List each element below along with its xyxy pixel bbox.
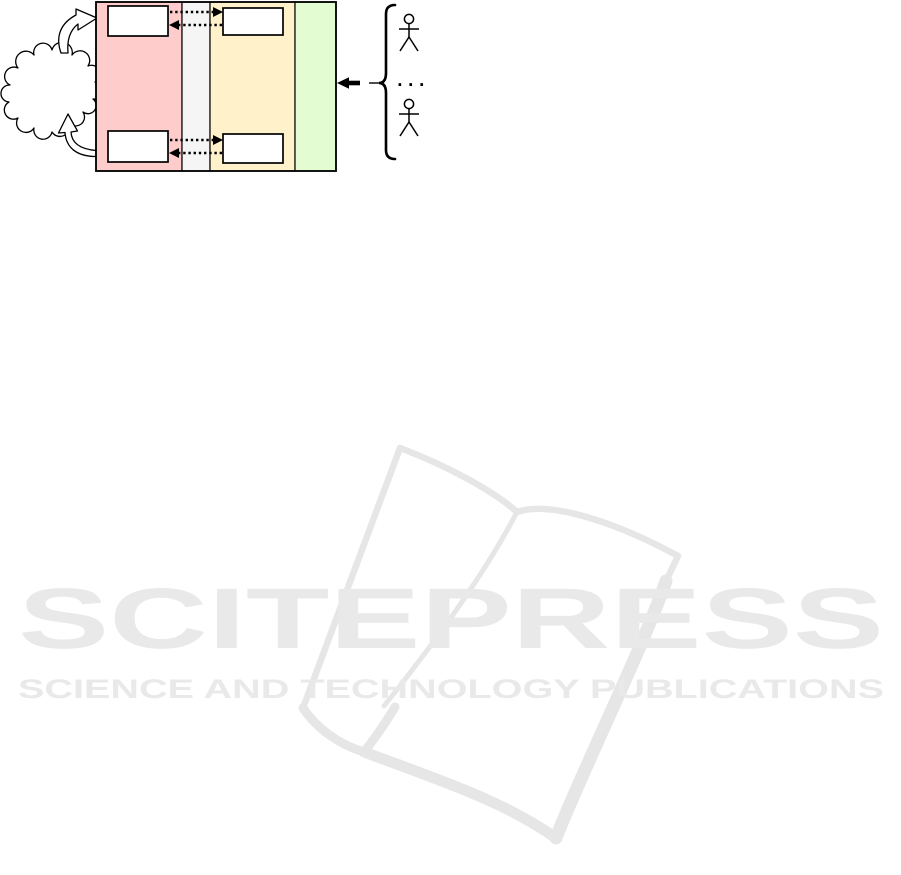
region-green [295,2,336,171]
users-brace [379,5,395,159]
user-icon-bottom [399,99,419,136]
region-gray [182,2,210,171]
users-arrow [337,77,360,89]
watermark-tagline: SCIENCE AND TECHNOLOGY PUBLICATIONS [18,674,884,704]
user-icon-top [399,14,419,51]
architecture-figure: . . . [0,0,460,180]
paper-page: . . . SCITEPRESS SCIENCE AND TECHNOLOGY [0,0,901,875]
watermark-brand: SCITEPRESS [18,571,884,667]
scitepress-watermark: SCITEPRESS SCIENCE AND TECHNOLOGY PUBLIC… [0,430,901,875]
module-box-yellow-top [223,8,283,35]
module-box-yellow-bottom [223,134,283,163]
module-box-red-bottom [108,131,168,162]
users-ellipsis: . . . [397,72,425,90]
cloud-to-system-arrow [59,9,97,53]
cloud-icon [1,42,103,139]
module-box-red-top [108,6,168,36]
